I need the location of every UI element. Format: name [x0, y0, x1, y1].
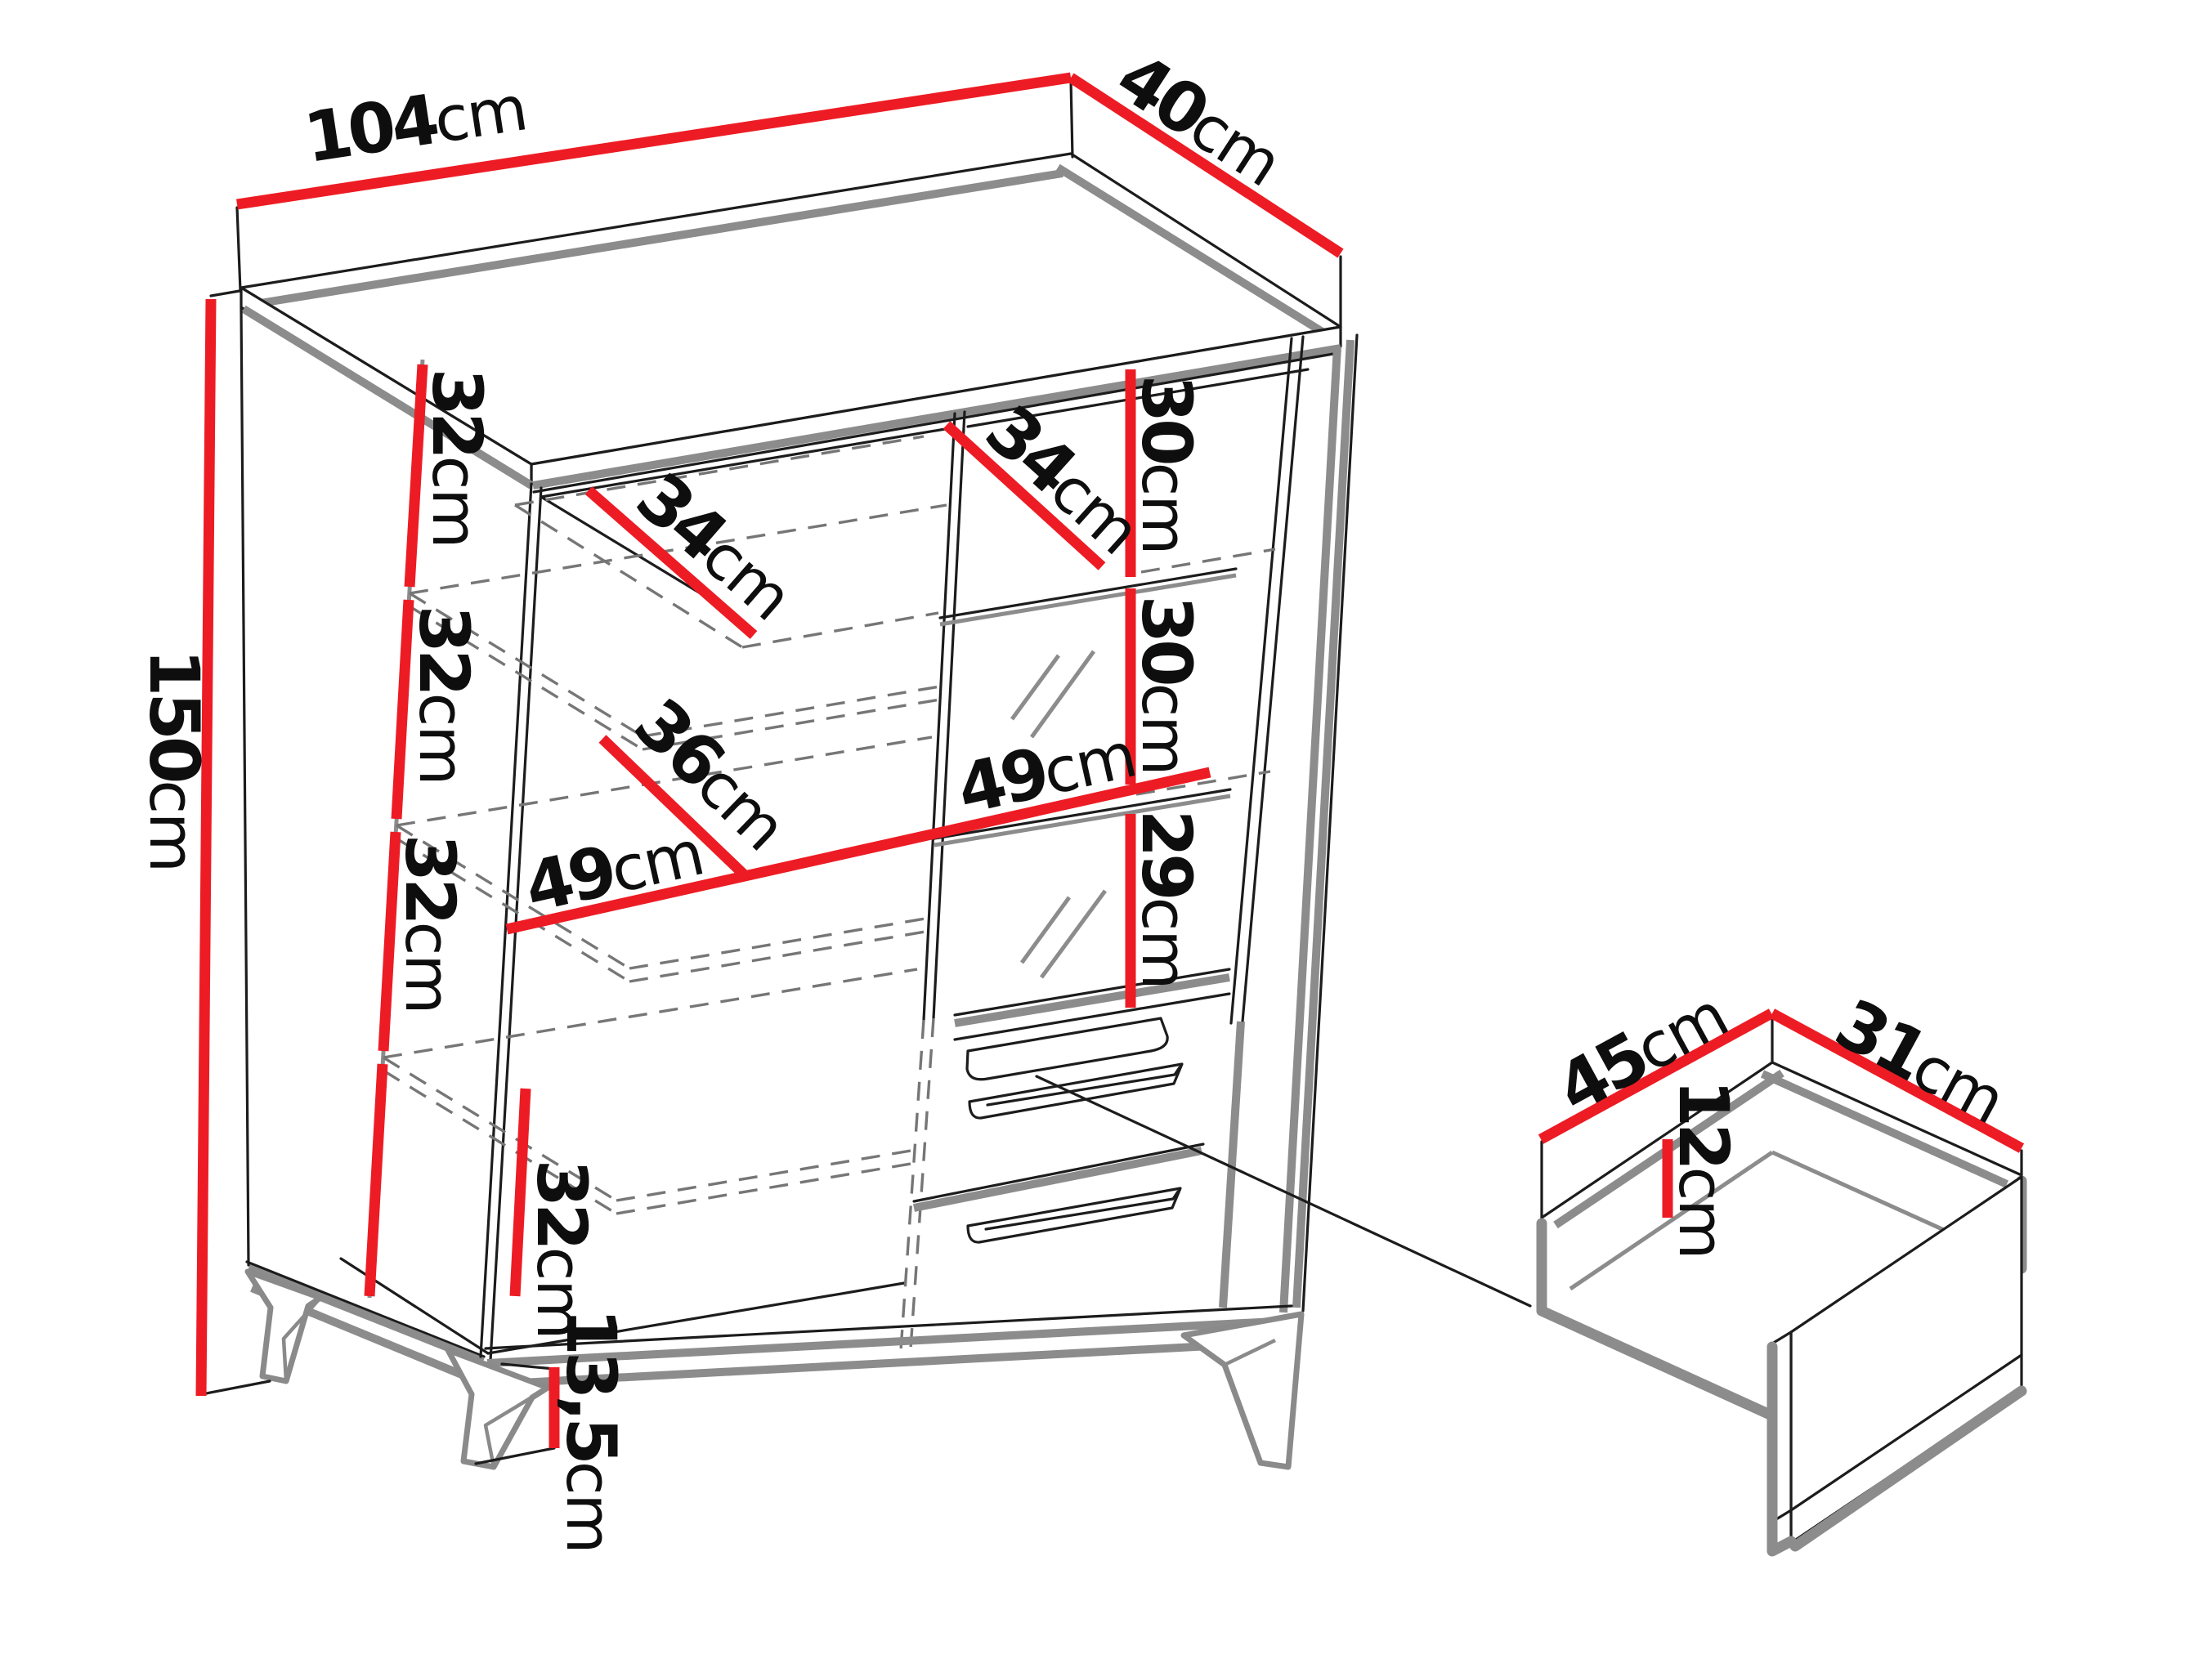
drawer-fronts — [914, 1064, 1203, 1242]
shelf-hidden-front-edge — [616, 1151, 911, 1201]
cabinet-dimension-drawing: 104cm 40cm 150cm 32cm 32cm 32cm 32cm 34c… — [0, 0, 2212, 1659]
glass-reflection — [1041, 891, 1105, 977]
label-overall-depth: 40cm — [1103, 37, 1296, 201]
front-right-leg — [1184, 1314, 1301, 1467]
divider-hidden-edge — [911, 1018, 934, 1348]
door-right-stile — [1243, 337, 1303, 1022]
glass-reflection — [1032, 651, 1094, 737]
label-gap-32-1: 32cm — [417, 369, 497, 548]
side-back-edge — [241, 307, 249, 1265]
extension-line — [237, 208, 240, 291]
front-right-edge-shadow — [1296, 340, 1350, 1308]
label-gap-30-1: 30cm — [1126, 375, 1207, 554]
label-drawer-height: 12cm — [1663, 1080, 1744, 1259]
top-shelf-hidden-front-edge — [742, 613, 938, 647]
label-gap-32-3: 32cm — [390, 834, 470, 1013]
diagram-canvas: 104cm 40cm 150cm 32cm 32cm 32cm 32cm 34c… — [0, 0, 2212, 1659]
door-right-stile — [1231, 338, 1292, 1023]
shelf-hidden-front-edge — [629, 919, 925, 968]
label-leg-height: 13,5cm — [551, 1308, 631, 1552]
extension-line — [1071, 80, 1072, 157]
divider-hidden-edge — [901, 1020, 924, 1350]
interior-floor-side-edge — [341, 1259, 488, 1353]
center-divider — [901, 412, 965, 1350]
extension-line — [202, 1381, 270, 1394]
extension-line — [211, 291, 240, 296]
display-tray-lip — [967, 1018, 1167, 1080]
dim-line-gap-32 — [369, 1064, 383, 1296]
label-overall-height: 150cm — [134, 649, 214, 871]
label-gap-32-2: 32cm — [404, 606, 484, 785]
glass-reflection — [1022, 897, 1069, 963]
label-gap-29: 29cm — [1126, 810, 1207, 989]
shelf-hidden-front-edge — [616, 1164, 911, 1214]
label-gap-30-2: 30cm — [1126, 596, 1207, 775]
